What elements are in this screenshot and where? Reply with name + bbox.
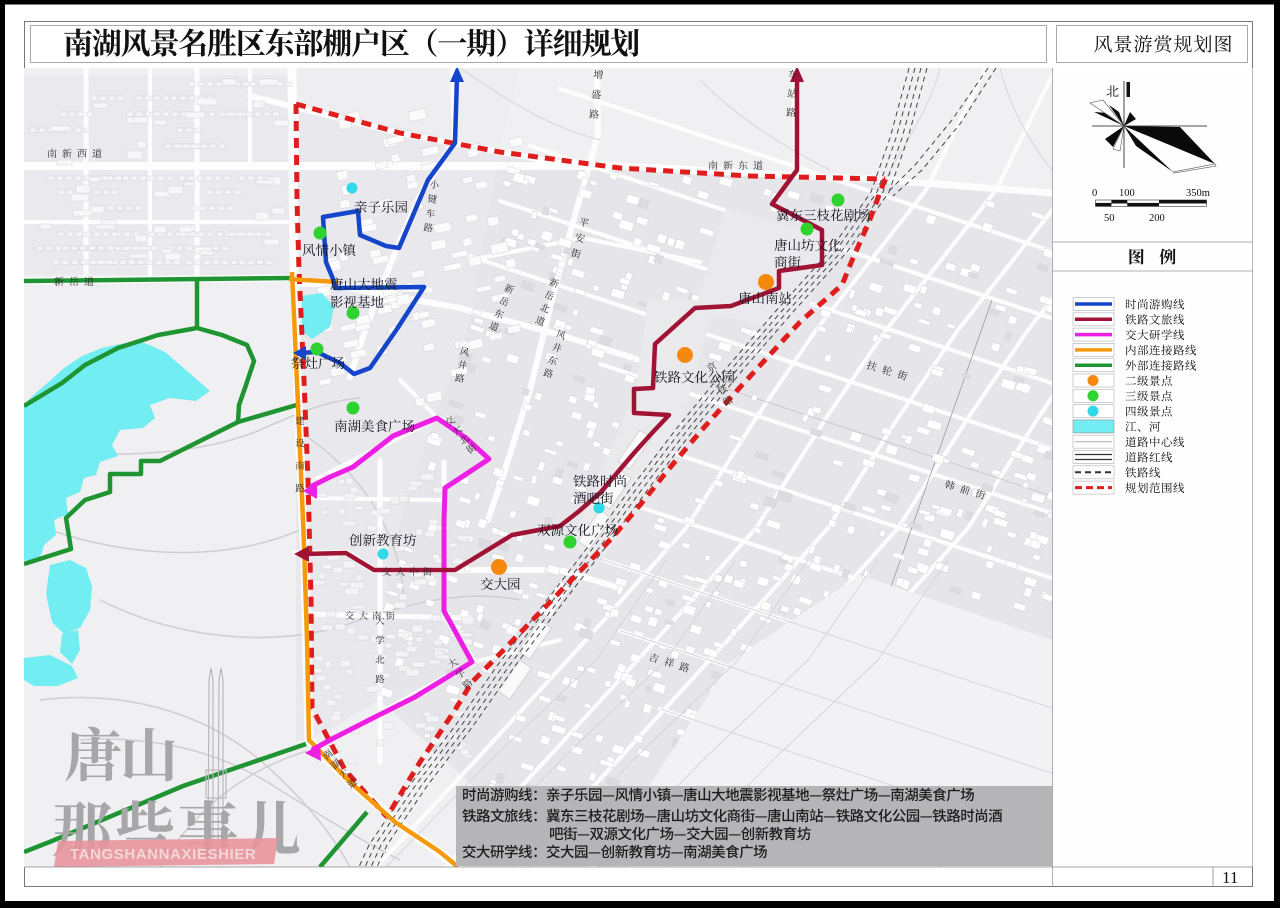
svg-text:350m: 350m	[1186, 188, 1210, 199]
svg-text:0: 0	[1092, 188, 1097, 199]
svg-text:50: 50	[1104, 213, 1115, 224]
svg-text:TANGSHANNAXIESHIER: TANGSHANNAXIESHIER	[70, 846, 256, 863]
svg-text:100: 100	[1119, 188, 1135, 199]
svg-text:200: 200	[1149, 213, 1165, 224]
svg-text:11: 11	[1222, 868, 1238, 887]
